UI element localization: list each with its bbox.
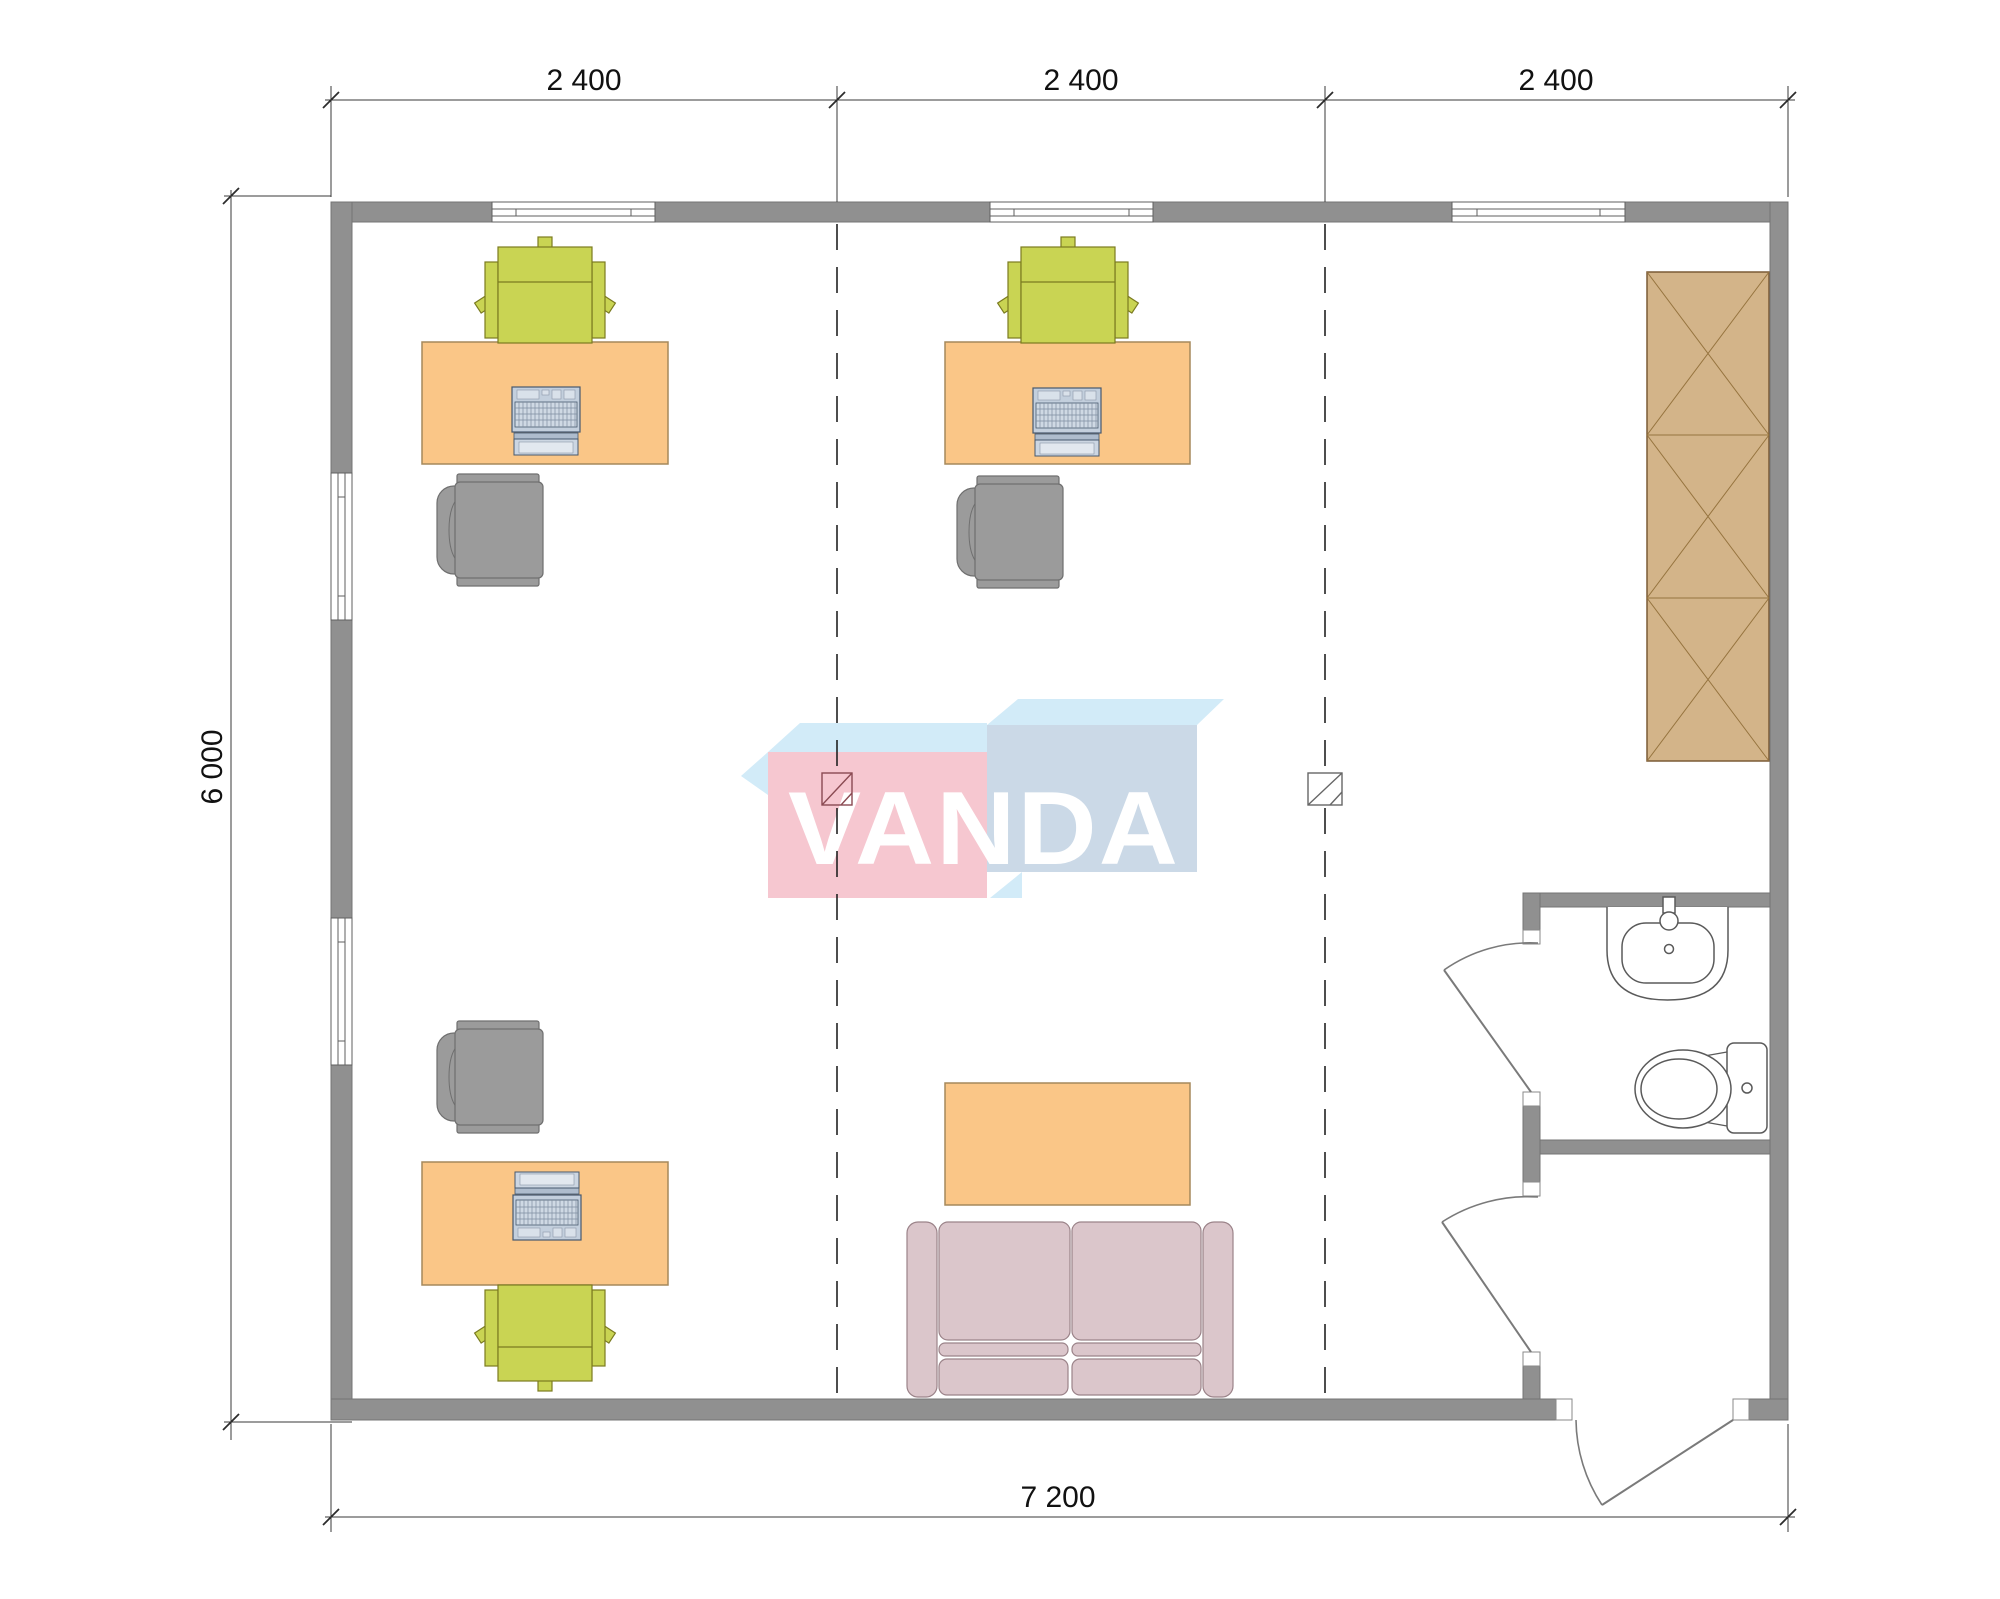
armchair-gray-icon: [957, 476, 1063, 588]
office-chair-green-icon: [475, 1285, 616, 1391]
floor-plan-drawing: VANDA: [0, 0, 2000, 1599]
wall-left: [331, 202, 352, 1420]
door-jamb: [1523, 930, 1540, 944]
axis-marker-icon: [1308, 773, 1342, 805]
floor-plan-page: VANDA: [0, 0, 2000, 1599]
door-icon: [1576, 1420, 1733, 1505]
dimension-label-top-3: 2 400: [1518, 64, 1593, 97]
door-icon: [1444, 943, 1538, 1092]
logo-box-flap: [987, 699, 1224, 725]
door-jamb: [1733, 1399, 1749, 1420]
wall-bottom: [331, 1399, 1556, 1420]
window-icon: [1452, 202, 1625, 222]
window-icon: [492, 202, 655, 222]
wall-partition: [1523, 1092, 1540, 1196]
laptop-icon: [512, 387, 580, 455]
dimension-label-top-1: 2 400: [546, 64, 621, 97]
sofa-icon: [907, 1222, 1233, 1397]
dimension-label-left: 6 000: [196, 729, 229, 804]
laptop-icon: [513, 1172, 581, 1240]
door-icon: [1442, 1197, 1538, 1352]
logo-box-flap: [768, 723, 987, 752]
window-icon: [331, 918, 352, 1065]
window-icon: [331, 473, 352, 620]
doors: [1442, 943, 1733, 1505]
logo-wordmark: VANDA: [788, 771, 1180, 887]
door-jamb: [1523, 1182, 1540, 1196]
coffee-table-icon: [945, 1083, 1190, 1205]
armchair-gray-icon: [437, 474, 543, 586]
door-jamb: [1556, 1399, 1572, 1420]
wall-bathroom-top: [1523, 893, 1770, 907]
wall-right: [1770, 202, 1788, 1420]
wall-bottom: [1749, 1399, 1788, 1420]
toilet-icon: [1635, 1043, 1767, 1133]
door-jamb: [1523, 1352, 1540, 1366]
sink-icon: [1607, 897, 1728, 1000]
logo-box-flap: [741, 752, 768, 795]
dimension-label-top-2: 2 400: [1043, 64, 1118, 97]
dimension-label-bottom: 7 200: [1020, 1481, 1095, 1514]
window-icon: [990, 202, 1153, 222]
office-chair-green-icon: [475, 237, 616, 343]
door-jamb: [1523, 1092, 1540, 1106]
wardrobe-icon: [1647, 272, 1769, 761]
laptop-icon: [1033, 388, 1101, 456]
wall-bathroom-bottom: [1540, 1140, 1770, 1154]
vanda-logo: VANDA: [741, 699, 1224, 898]
office-chair-green-icon: [998, 237, 1139, 343]
armchair-gray-icon: [437, 1021, 543, 1133]
